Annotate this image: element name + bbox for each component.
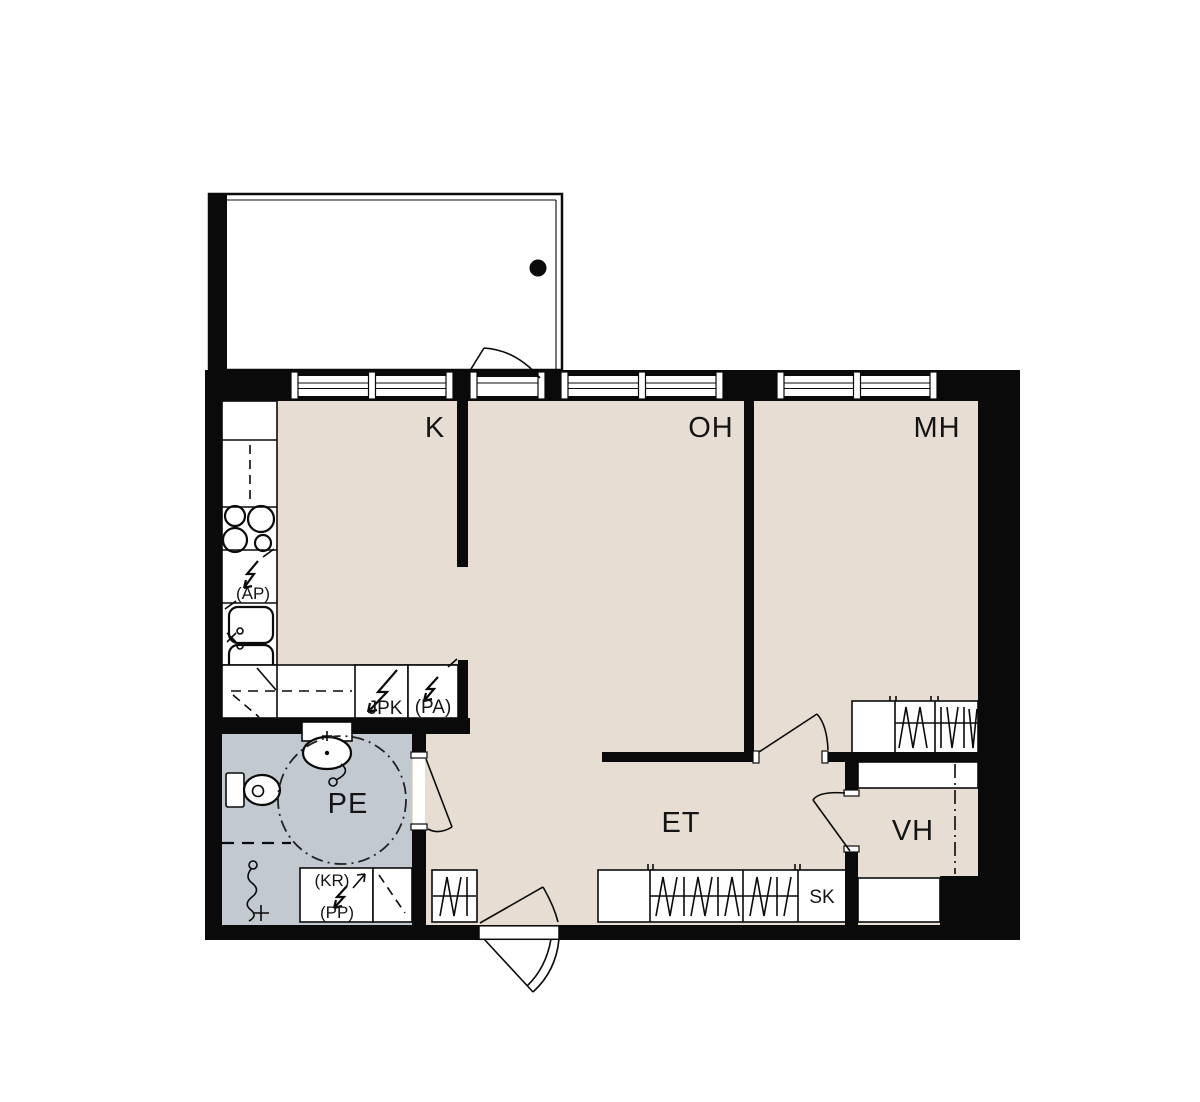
window-kitchen <box>291 372 453 399</box>
floor-plan-canvas: K OH MH PE ET VH SK JPK (PA) (AP) (KR) (… <box>0 0 1200 1102</box>
wall-right <box>978 370 1020 940</box>
wall-counter-cap <box>458 660 468 720</box>
appliance-label-kr: (KR) <box>315 871 350 890</box>
wall-et-north <box>602 752 754 762</box>
floor-plan: K OH MH PE ET VH SK JPK (PA) (AP) (KR) (… <box>0 0 1200 1102</box>
wall-bottom <box>205 925 1020 940</box>
balcony <box>209 193 562 370</box>
floor-drain-icon <box>530 260 547 277</box>
room-label-kitchen: K <box>425 412 445 444</box>
bedroom-closet <box>852 696 978 753</box>
room-label-closet: VH <box>892 815 934 847</box>
wall-corner-mass <box>940 876 1020 940</box>
wall-mh-south <box>828 752 978 762</box>
appliance-label-ap: (AP) <box>236 584 270 603</box>
appliance-label-jpk: JPK <box>368 698 403 719</box>
window-bedroom <box>777 372 937 399</box>
toilet-icon <box>226 773 280 807</box>
wall-oh-mh <box>744 401 754 762</box>
wall-pe-right-upper <box>412 718 426 752</box>
entry-wardrobe <box>432 870 477 922</box>
room-label-hall: ET <box>661 807 700 839</box>
wall-et-vh-upper <box>845 762 858 790</box>
appliance-label-pa: (PA) <box>415 697 452 718</box>
appliance-label-pp: (PP) <box>320 903 354 922</box>
wall-pe-right-lower <box>412 830 426 925</box>
wall-kitchen-stub <box>457 401 468 567</box>
room-label-bedroom: MH <box>913 412 960 444</box>
balcony-wall <box>209 193 227 370</box>
room-label-cleaning-closet: SK <box>809 887 835 908</box>
window-living <box>561 372 723 399</box>
wall-left <box>205 370 222 940</box>
room-label-living: OH <box>688 412 734 444</box>
room-label-bathroom: PE <box>328 788 369 820</box>
wall-et-vh-lower <box>845 852 858 925</box>
